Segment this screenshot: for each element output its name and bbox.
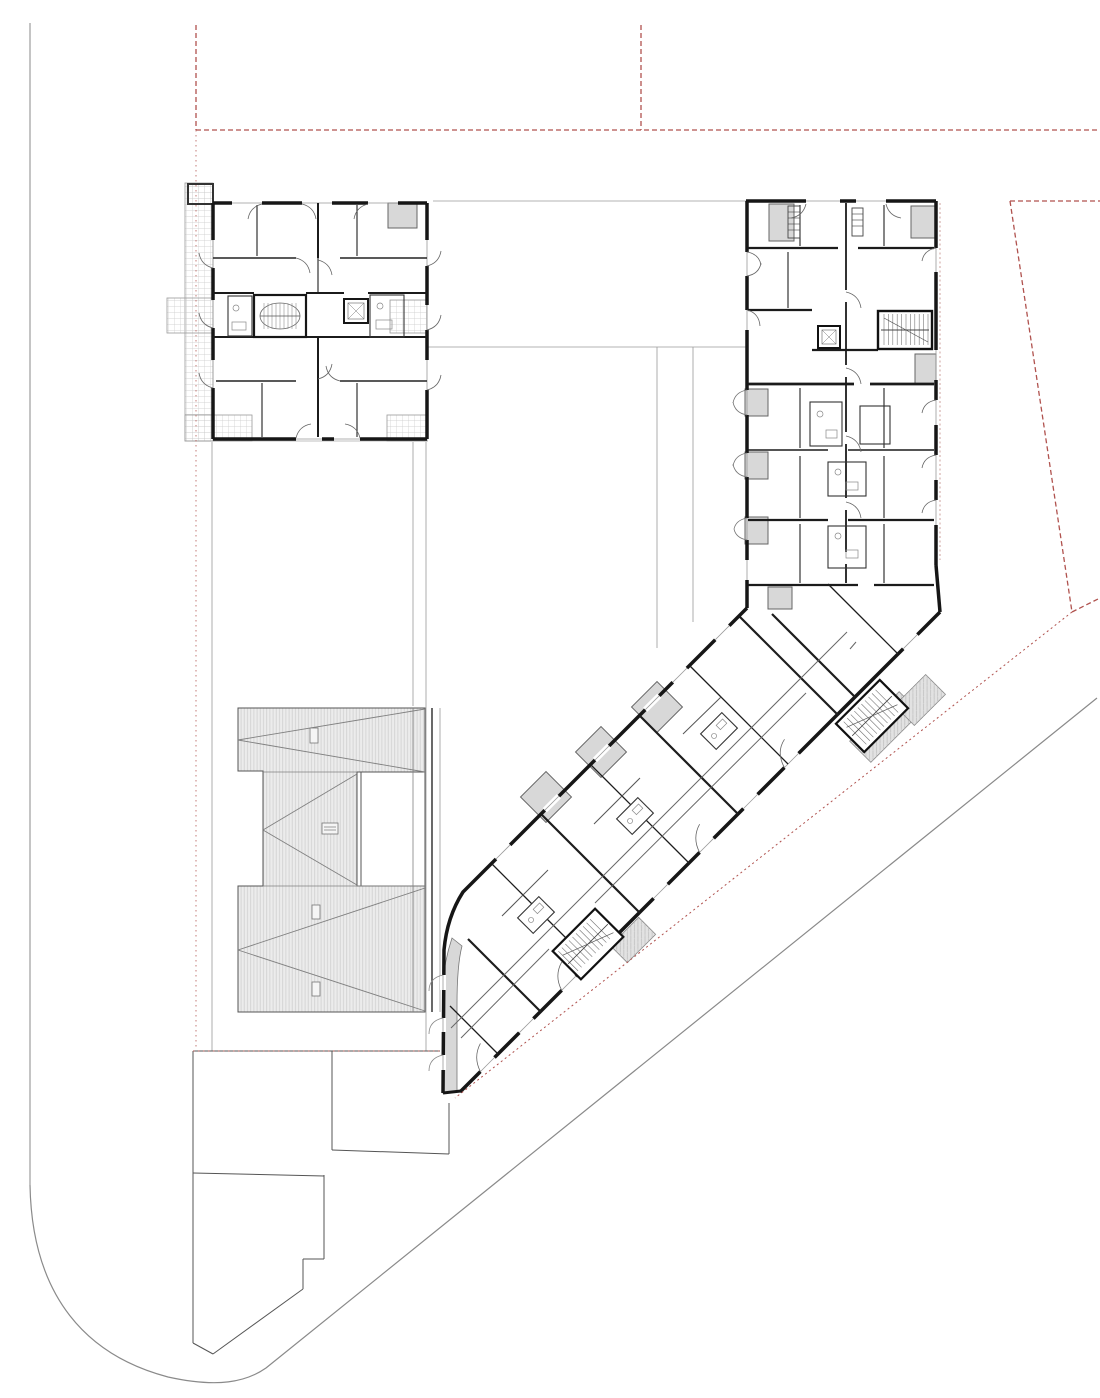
- site-plan-svg: [0, 0, 1100, 1398]
- existing-roof-building: [238, 708, 440, 1012]
- architectural-site-plan: [0, 0, 1100, 1398]
